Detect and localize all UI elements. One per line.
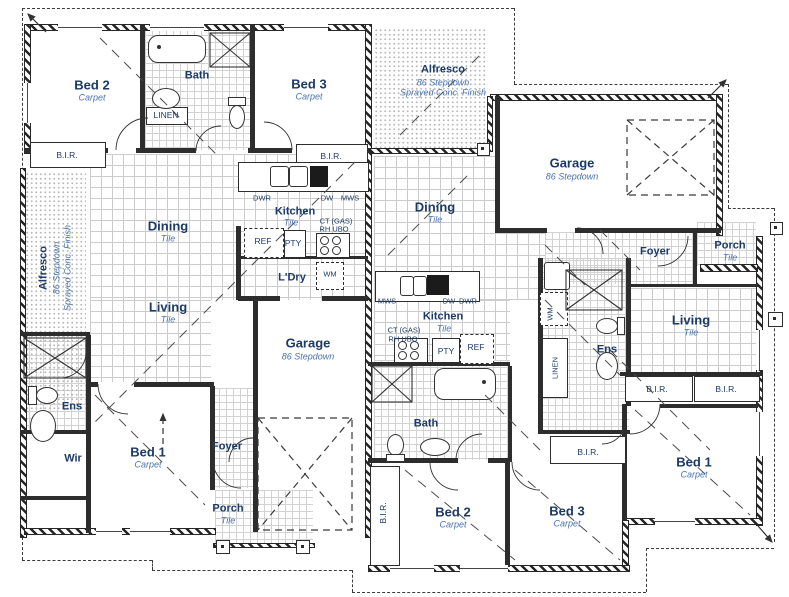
finish-dining-right: Tile	[428, 216, 442, 225]
label-layer: Bed 2CarpetBathLINENB.I.R.Bed 3CarpetB.I…	[0, 0, 789, 597]
room-wir-left: Wir	[64, 454, 82, 465]
room-bed2-right: Bed 2	[435, 506, 470, 519]
sub-alfresco-right-2: Sprayed Conc. Finish	[400, 89, 486, 98]
room-dining-right: Dining	[415, 201, 455, 214]
finish-kitchen-left: Tile	[284, 219, 298, 228]
room-alfresco-right: Alfresco	[421, 65, 465, 76]
fix-wm-right: WM	[546, 307, 554, 320]
finish-kitchen-right: Tile	[437, 325, 451, 334]
room-living-left: Living	[149, 301, 187, 314]
room-foyer-right: Foyer	[640, 247, 670, 258]
closet-bir-bed2-left: B.I.R.	[56, 151, 77, 160]
finish-dining-left: Tile	[161, 235, 175, 244]
finish-bed1-right: Carpet	[680, 471, 707, 480]
room-kitchen-right: Kitchen	[423, 312, 463, 323]
sub-alfresco-left-2: Sprayed Conc. Finish	[64, 225, 73, 311]
fix-ctgas-right: CT (GAS)	[388, 326, 421, 334]
sub-alfresco-right-1: 86 Stepdown	[417, 79, 470, 88]
closet-bir-bed3-right: B.I.R.	[577, 448, 598, 457]
fix-mws-right: MWS	[378, 297, 396, 305]
fix-mws-left: MWS	[341, 194, 359, 202]
room-bath-left: Bath	[185, 71, 209, 82]
closet-bir-bed2-right: B.I.R.	[379, 502, 388, 523]
fix-pty-left: PTY	[285, 239, 302, 248]
finish-porch-left: Tile	[221, 517, 235, 526]
room-kitchen-left: Kitchen	[275, 207, 315, 218]
finish-living-left: Tile	[161, 316, 175, 325]
fix-dw-right: DW	[443, 297, 456, 305]
closet-bir-bed3-left: B.I.R.	[320, 152, 341, 161]
sub-garage-left: 86 Stepdown	[282, 353, 335, 362]
fix-rhubo-left: RH UBO	[319, 225, 348, 233]
room-alfresco-left: Alfresco	[39, 246, 50, 290]
room-ens-left: Ens	[62, 402, 82, 413]
room-bed2-left: Bed 2	[74, 79, 109, 92]
finish-bed3-left: Carpet	[295, 93, 322, 102]
floor-plan-canvas: Bed 2CarpetBathLINENB.I.R.Bed 3CarpetB.I…	[0, 0, 789, 597]
room-ldry-left: L'Dry	[278, 273, 306, 284]
fix-dw-left: DW	[321, 194, 334, 202]
fix-dwr-left: DWR	[253, 194, 271, 202]
finish-bed2-left: Carpet	[78, 94, 105, 103]
fix-ref-right: REF	[468, 343, 485, 352]
fix-dwr-right: DWR	[459, 297, 477, 305]
finish-living-right: Tile	[684, 329, 698, 338]
room-foyer-left: Foyer	[212, 442, 242, 453]
closet-linen-right: LINEN	[551, 357, 559, 379]
room-bed1-left: Bed 1	[130, 446, 165, 459]
room-garage-left: Garage	[286, 337, 331, 350]
fix-rhubo-right: RH UBO	[388, 335, 417, 343]
closet-bir-living-right-1: B.I.R.	[646, 385, 667, 394]
room-living-right: Living	[672, 314, 710, 327]
room-ens-right: Ens	[597, 345, 617, 356]
room-garage-right: Garage	[550, 157, 595, 170]
finish-porch-right: Tile	[723, 254, 737, 263]
room-bed1-right: Bed 1	[676, 456, 711, 469]
room-dining-left: Dining	[148, 220, 188, 233]
fix-pty-right: PTY	[438, 347, 455, 356]
room-bath-right: Bath	[414, 419, 438, 430]
finish-bed1-left: Carpet	[134, 461, 161, 470]
closet-linen-left: LINEN	[153, 111, 178, 120]
room-bed3-left: Bed 3	[291, 78, 326, 91]
finish-bed2-right: Carpet	[439, 521, 466, 530]
fix-wm-left: WM	[323, 270, 336, 278]
closet-bir-living-right-2: B.I.R.	[715, 385, 736, 394]
room-bed3-right: Bed 3	[549, 505, 584, 518]
fix-ref-left: REF	[255, 237, 272, 246]
finish-bed3-right: Carpet	[553, 520, 580, 529]
room-porch-left: Porch	[212, 504, 243, 515]
sub-alfresco-left-1: 86 Stepdown	[53, 242, 62, 295]
room-porch-right: Porch	[714, 241, 745, 252]
sub-garage-right: 86 Stepdown	[546, 173, 599, 182]
